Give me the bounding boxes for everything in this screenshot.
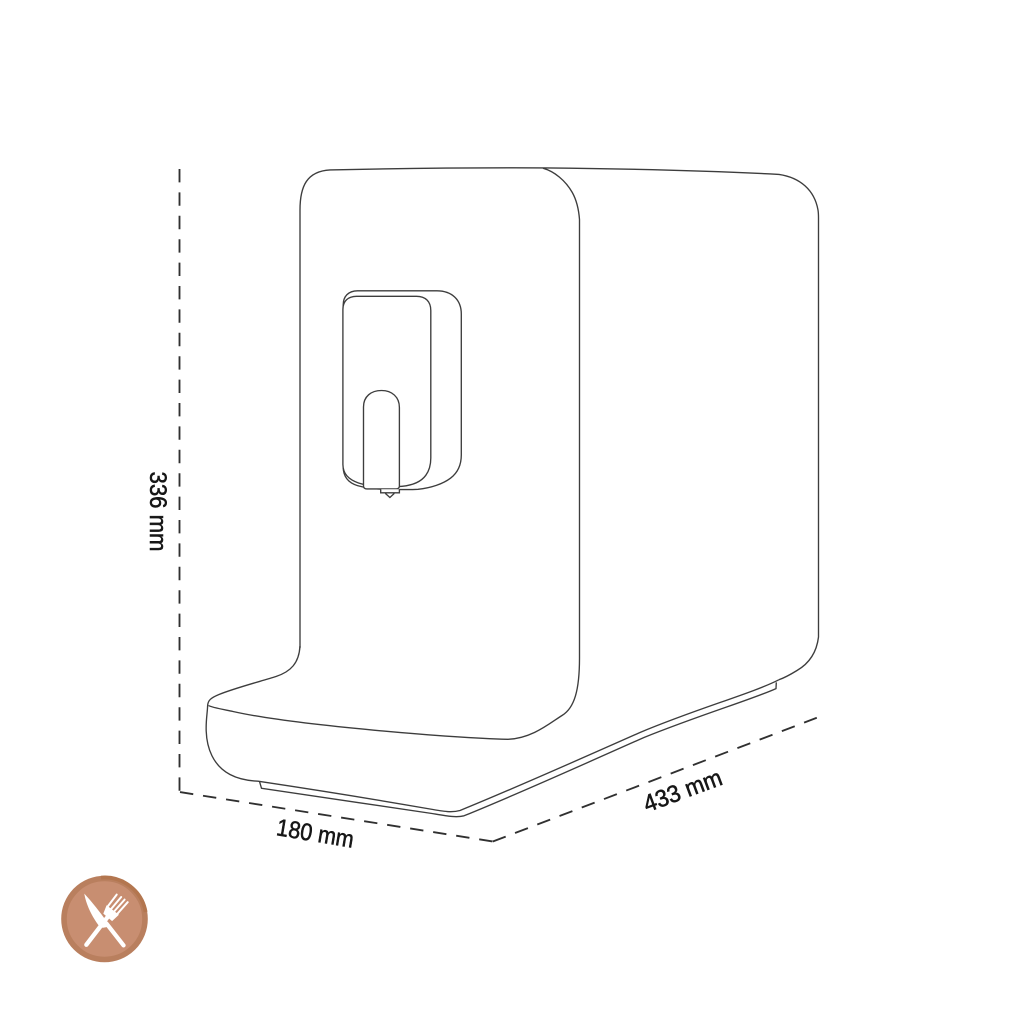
svg-text:433 mm: 433 mm bbox=[640, 764, 726, 818]
svg-text:180 mm: 180 mm bbox=[275, 814, 356, 854]
svg-text:336 mm: 336 mm bbox=[144, 472, 171, 552]
